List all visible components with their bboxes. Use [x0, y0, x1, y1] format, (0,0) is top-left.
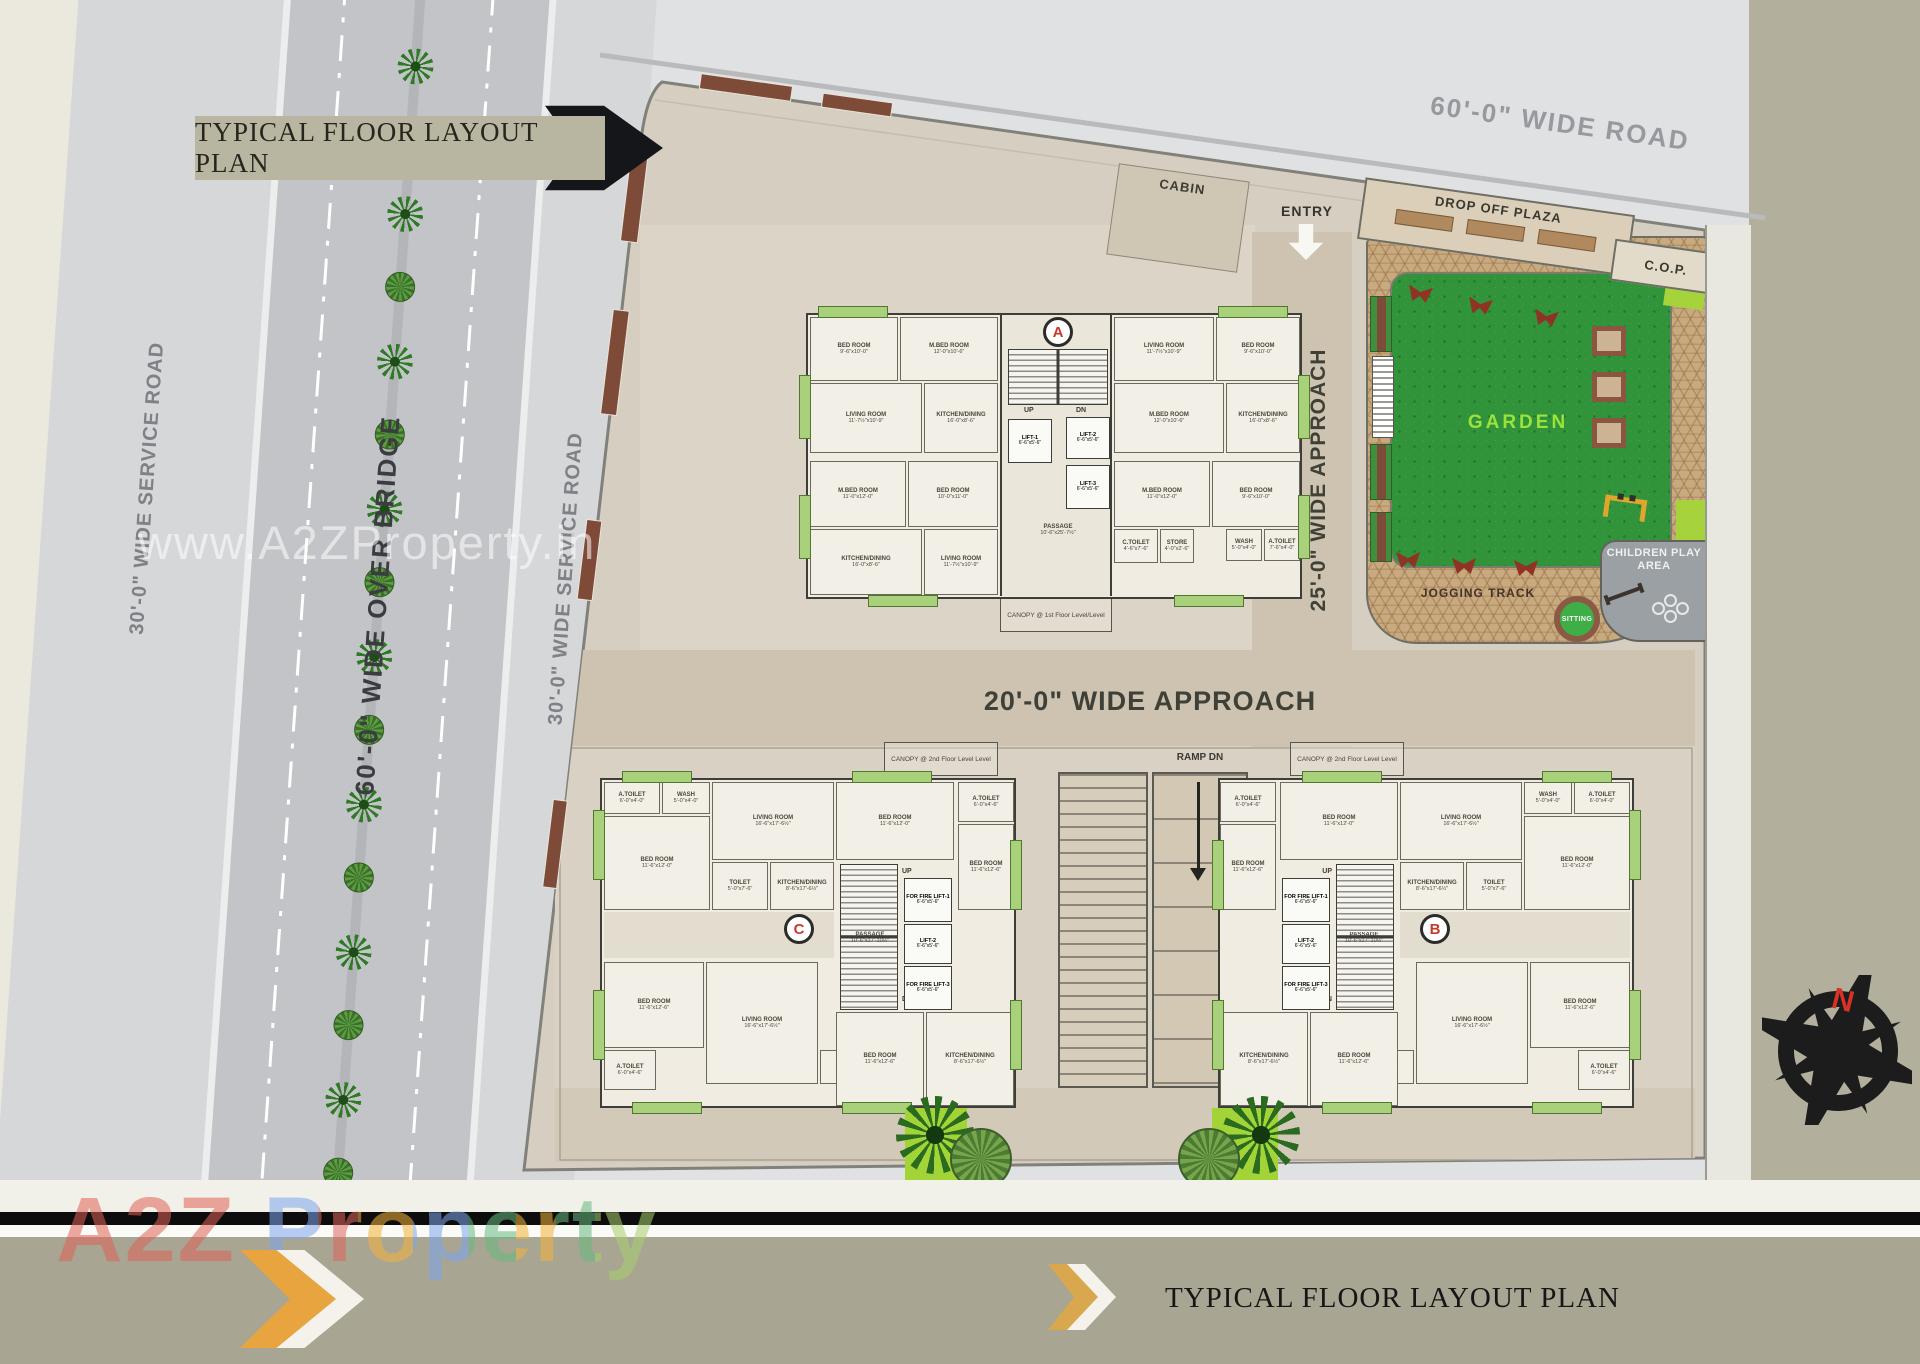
parking-bay [1466, 219, 1526, 242]
room-label: LIVING ROOM11'-7½"x10'-9" [810, 383, 922, 453]
balcony [593, 810, 605, 880]
floor-layout-poster: 30'-0" WIDE SERVICE ROAD 60'-0" WIDE OVE… [0, 0, 1920, 1364]
balcony [818, 306, 888, 318]
lift-2: LIFT-26'-6"x5'-6" [1066, 417, 1110, 459]
room-label: A.TOILET6'-0"x4'-6" [604, 1050, 656, 1090]
room-label: KITCHEN/DINING8'-6"x17'-6½" [770, 862, 834, 910]
play-circle-icon [1652, 602, 1665, 615]
balcony [632, 1102, 702, 1114]
canopy-label: CANOPY @ 2nd Floor Level Level [1297, 756, 1397, 763]
canopy-label: CANOPY @ 2nd Floor Level Level [891, 756, 991, 763]
parking-bay [1537, 229, 1597, 252]
ramp-arrow [1197, 782, 1200, 870]
garden-pergola [1372, 356, 1394, 438]
room-label: BED ROOM11'-6"x12'-0" [1280, 782, 1398, 860]
entry-label: ENTRY [1262, 203, 1352, 219]
fire-lift-3: FOR FIRE LIFT-36'-6"x5'-6" [1282, 966, 1330, 1010]
room-label: STORE4'-0"x2'-6" [1160, 529, 1194, 563]
planter-box [1592, 326, 1626, 356]
cabin-block: CABIN [1106, 163, 1250, 272]
room-label: A.TOILET6'-0"x4'-6" [1578, 1050, 1630, 1090]
room-label: A.TOILET6'-0"x4'-6" [958, 782, 1014, 822]
brand-logo-a2z: A2Z [56, 1179, 236, 1281]
passage-label: PASSAGE10'-6"x27'-10½" [838, 920, 902, 956]
room-label: LIVING ROOM16'-6"x17'-6½" [706, 962, 818, 1084]
balcony [1532, 1102, 1602, 1114]
balcony [1302, 771, 1382, 783]
canopy-box-a: CANOPY @ 1st Floor Level/Level [1000, 598, 1112, 632]
room-label: A.TOILET6'-0"x4'-0" [604, 782, 660, 814]
room-label: A.TOILET7'-6"x4'-0" [1264, 529, 1300, 561]
garden-bench [1370, 444, 1392, 500]
room-label: KITCHEN/DINING8'-6"x17'-6½" [1220, 1012, 1308, 1106]
balcony [1212, 840, 1224, 910]
staircase [1008, 349, 1108, 405]
room-label: LIVING ROOM16'-6"x17'-6½" [1400, 782, 1522, 860]
room-label: BED ROOM11'-6"x12'-6" [1530, 962, 1630, 1048]
building-b-badge: B [1420, 914, 1450, 944]
room-label: BED ROOM11'-6"x12'-0" [836, 782, 954, 860]
room-label: WASH5'-0"x4'-0" [1226, 529, 1262, 561]
play-circle-icon [1664, 594, 1677, 607]
stair-up-label: UP [1024, 407, 1034, 414]
balcony [1298, 375, 1310, 439]
children-play-area: CHILDREN PLAY AREA [1600, 540, 1708, 642]
cop-label: C.O.P. [1643, 257, 1688, 278]
parking-bay [1394, 209, 1454, 232]
play-circle-icon [1664, 610, 1677, 623]
cabin-label: CABIN [1158, 176, 1206, 197]
balcony [799, 495, 811, 559]
building-a: BED ROOM9'-6"x10'-0" M.BED ROOM12'-0"x10… [806, 313, 1302, 599]
lift-2: LIFT-26'-6"x5'-6" [904, 924, 952, 964]
watermark-text: www.A2ZProperty.in [138, 515, 596, 570]
room-label: LIVING ROOM16'-6"x17'-6½" [712, 782, 834, 860]
balcony [1218, 306, 1288, 318]
balcony [1542, 771, 1612, 783]
building-a-badge: A [1043, 317, 1073, 347]
footer-title: TYPICAL FLOOR LAYOUT PLAN [1165, 1282, 1565, 1315]
building-a-core: A UP DN LIFT-16'-6"x5'-6" LIFT-26'-6"x5'… [1000, 315, 1112, 596]
room-label: KITCHEN/DINING8'-6"x17'-6½" [1400, 862, 1464, 910]
room-label: TOILET5'-0"x7'-6" [1466, 862, 1522, 910]
room-label: BED ROOM9'-6"x10'-0" [1212, 461, 1300, 527]
passage-label: PASSAGE10'-6"x27'-10½" [1332, 920, 1396, 956]
stair-up-label: UP [1322, 868, 1332, 875]
balcony [1322, 1102, 1392, 1114]
room-label: KITCHEN/DINING16'-0"x8'-6" [810, 529, 922, 595]
room-label: LIVING ROOM16'-6"x17'-6½" [1416, 962, 1528, 1084]
balcony [1010, 1000, 1022, 1070]
brand-logo: A2Z Property [56, 1178, 658, 1283]
ramp-arrow-head [1190, 868, 1206, 881]
approach-25-label: 25'-0" WIDE APPROACH [1307, 330, 1337, 630]
balcony [1298, 495, 1310, 559]
central-stair-lane [1058, 772, 1148, 1088]
room-label: BED ROOM11'-6"x12'-6" [958, 824, 1014, 910]
balcony [1629, 990, 1641, 1060]
fire-lift-3: FOR FIRE LIFT-36'-6"x5'-6" [904, 966, 952, 1010]
room-label: BED ROOM11'-6"x12'-6" [836, 1012, 924, 1106]
approach-20-label: 20'-0" WIDE APPROACH [935, 686, 1365, 717]
lift-1: LIFT-16'-6"x5'-6" [1008, 419, 1052, 463]
right-light-strip [1705, 225, 1751, 1235]
room-label: KITCHEN/DINING16'-0"x8'-6" [1226, 383, 1300, 453]
balcony [842, 1102, 912, 1114]
room-label: A.TOILET6'-0"x4'-6" [1220, 782, 1276, 822]
room-label: WASH5'-0"x4'-0" [1524, 782, 1572, 814]
canopy-label: CANOPY @ 1st Floor Level/Level [1007, 612, 1105, 619]
balcony [1212, 1000, 1224, 1070]
room-label: C.TOILET4'-6"x7'-6" [1114, 529, 1158, 563]
balcony [1174, 595, 1244, 607]
planter-box [1592, 418, 1626, 448]
garden-bench [1370, 512, 1392, 562]
building-c: A.TOILET6'-0"x4'-0" WASH5'-0"x4'-0" LIVI… [600, 778, 1016, 1108]
room-label: M.BED ROOM12'-0"x10'-6" [1114, 383, 1224, 453]
balcony [868, 595, 938, 607]
lawn-patch [1676, 500, 1706, 544]
passage-label: PASSAGE10'-6"x25'-7½" [1008, 515, 1108, 545]
planter-box [1592, 372, 1626, 402]
room-label: LIVING ROOM11'-7½"x10'-9" [924, 529, 998, 595]
lift-3: LIFT-36'-6"x5'-6" [1066, 465, 1110, 509]
play-circle-icon [1676, 602, 1689, 615]
room-label: A.TOILET6'-0"x4'-0" [1574, 782, 1630, 814]
room-label: BED ROOM9'-6"x10'-0" [1216, 317, 1300, 381]
balcony [593, 990, 605, 1060]
balcony [1629, 810, 1641, 880]
building-c-badge: C [784, 914, 814, 944]
fire-lift-1: FOR FIRE LIFT-16'-6"x5'-6" [1282, 878, 1330, 922]
fire-lift-1: FOR FIRE LIFT-16'-6"x5'-6" [904, 878, 952, 922]
room-label: M.BED ROOM11'-0"x12'-0" [1114, 461, 1210, 527]
sitting-area: SITTING [1554, 596, 1600, 642]
room-label: BED ROOM9'-6"x10'-0" [810, 317, 898, 381]
balcony [852, 771, 932, 783]
lift-2: LIFT-26'-6"x5'-6" [1282, 924, 1330, 964]
room-label: BED ROOM11'-6"x12'-0" [1524, 816, 1630, 910]
room-label: M.BED ROOM11'-0"x12'-0" [810, 461, 906, 527]
stair-up-label: UP [902, 868, 912, 875]
room-label: BED ROOM11'-6"x12'-6" [604, 962, 704, 1048]
ramp-dn-label: RAMP DN [1148, 752, 1252, 763]
balcony [622, 771, 692, 783]
room-label: WASH5'-0"x4'-0" [662, 782, 710, 814]
garden-bench [1370, 296, 1392, 352]
room-label: TOILET5'-0"x7'-6" [712, 862, 768, 910]
room-label: BED ROOM11'-6"x12'-6" [1220, 824, 1276, 910]
children-play-area-label: CHILDREN PLAY AREA [1602, 547, 1706, 572]
room-label: KITCHEN/DINING16'-0"x8'-6" [924, 383, 998, 453]
sitting-label: SITTING [1562, 616, 1592, 623]
building-b: A.TOILET6'-0"x4'-0" WASH5'-0"x4'-0" LIVI… [1218, 778, 1634, 1108]
room-label: LIVING ROOM11'-7½"x10'-9" [1114, 317, 1214, 381]
garden-label: GARDEN [1448, 412, 1588, 434]
room-label: KITCHEN/DINING8'-6"x17'-6½" [926, 1012, 1014, 1106]
balcony [799, 375, 811, 439]
room-label: BED ROOM11'-6"x12'-0" [604, 816, 710, 910]
stair-dn-label: DN [1076, 407, 1086, 414]
room-label: M.BED ROOM12'-0"x10'-6" [900, 317, 998, 381]
jogging-track-label: JOGGING TRACK [1408, 586, 1548, 600]
room-label: BED ROOM11'-6"x12'-6" [1310, 1012, 1398, 1106]
room-label: BED ROOM10'-0"x11'-0" [908, 461, 998, 527]
banner-title: TYPICAL FLOOR LAYOUT PLAN [195, 116, 605, 180]
balcony [1010, 840, 1022, 910]
